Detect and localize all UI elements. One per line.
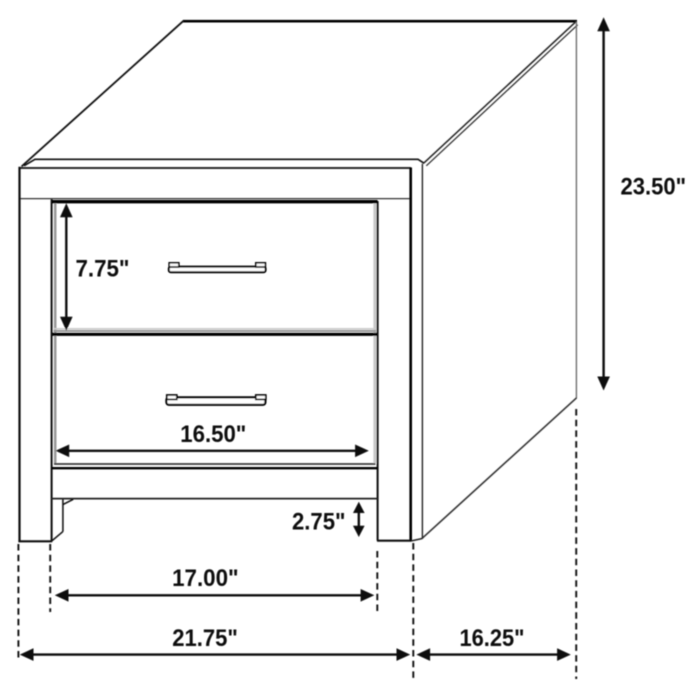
- svg-text:21.75": 21.75": [172, 625, 238, 652]
- svg-text:2.75": 2.75": [292, 509, 346, 536]
- svg-text:16.50": 16.50": [180, 421, 246, 448]
- svg-text:16.25": 16.25": [460, 625, 525, 652]
- svg-text:7.75": 7.75": [76, 256, 130, 283]
- svg-text:17.00": 17.00": [172, 565, 239, 592]
- svg-text:23.50": 23.50": [621, 174, 687, 201]
